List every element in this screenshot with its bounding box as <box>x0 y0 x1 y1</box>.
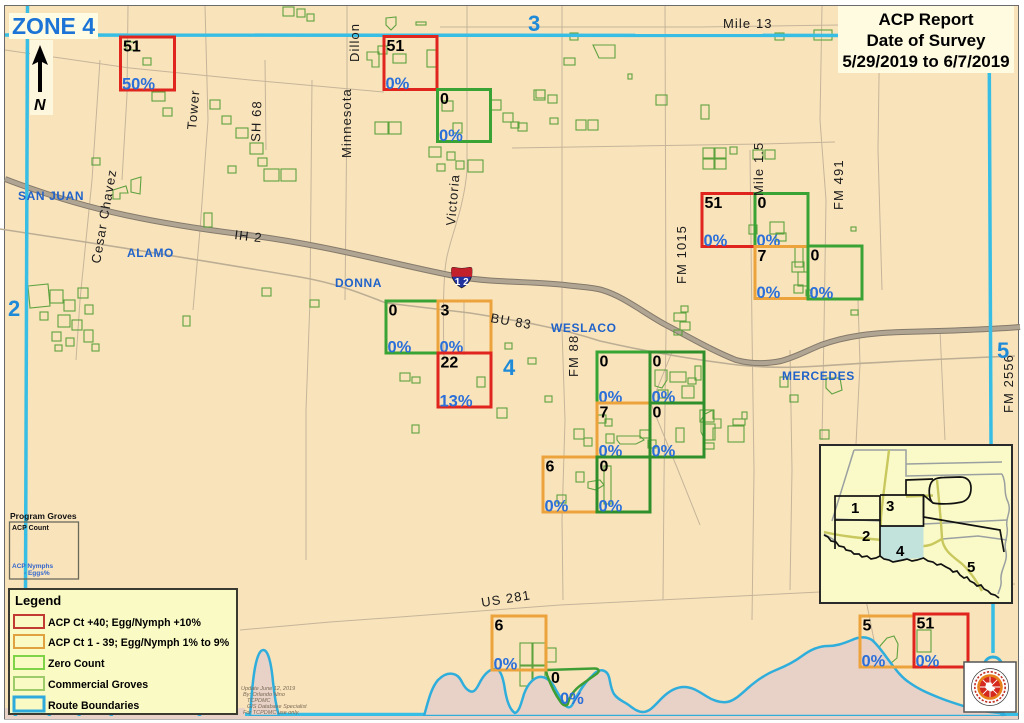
svg-text:N: N <box>34 97 46 114</box>
svg-text:0%: 0% <box>545 498 569 516</box>
svg-text:51: 51 <box>917 616 935 633</box>
svg-text:22: 22 <box>441 355 459 372</box>
svg-text:5/29/2019 to 6/7/2019: 5/29/2019 to 6/7/2019 <box>842 52 1009 71</box>
svg-text:5: 5 <box>863 618 872 635</box>
svg-text:0%: 0% <box>810 285 834 303</box>
svg-text:0%: 0% <box>439 127 463 145</box>
svg-text:2: 2 <box>8 296 20 321</box>
svg-text:13%: 13% <box>440 393 473 411</box>
svg-text:51: 51 <box>705 195 723 212</box>
svg-text:4: 4 <box>503 355 516 380</box>
svg-text:Dillon: Dillon <box>347 23 362 62</box>
svg-text:0%: 0% <box>494 656 518 674</box>
svg-text:ACP Nymphs: ACP Nymphs <box>12 563 53 570</box>
svg-text:4: 4 <box>896 543 905 560</box>
svg-text:51: 51 <box>123 39 141 56</box>
svg-text:0%: 0% <box>386 75 410 93</box>
svg-text:5: 5 <box>997 338 1009 363</box>
svg-text:ZONE 4: ZONE 4 <box>12 13 95 39</box>
svg-text:50%: 50% <box>122 76 155 94</box>
svg-text:2: 2 <box>862 528 870 545</box>
svg-text:SH 68: SH 68 <box>248 100 264 142</box>
svg-text:0: 0 <box>653 405 662 422</box>
svg-text:For TCPDMC use only.: For TCPDMC use only. <box>243 710 300 716</box>
svg-text:3: 3 <box>886 498 894 515</box>
svg-text:FM 491: FM 491 <box>831 159 846 210</box>
svg-text:Zero Count: Zero Count <box>48 658 105 670</box>
svg-text:0: 0 <box>600 354 609 371</box>
svg-text:3: 3 <box>528 11 540 36</box>
svg-text:3: 3 <box>441 303 450 320</box>
svg-text:0%: 0% <box>757 284 781 302</box>
svg-text:- Eggs%: - Eggs% <box>24 570 50 577</box>
svg-text:SAN JUAN: SAN JUAN <box>18 189 84 203</box>
svg-text:0%: 0% <box>704 232 728 250</box>
svg-text:0%: 0% <box>560 690 584 708</box>
svg-text:1 2: 1 2 <box>455 277 469 288</box>
svg-text:0: 0 <box>440 91 449 108</box>
svg-text:1: 1 <box>851 500 859 517</box>
svg-text:ACP Ct +40; Egg/Nymph +10%: ACP Ct +40; Egg/Nymph +10% <box>48 617 201 629</box>
svg-text:0: 0 <box>389 303 398 320</box>
svg-text:WESLACO: WESLACO <box>551 321 617 335</box>
svg-text:FM 88: FM 88 <box>566 335 581 377</box>
svg-text:6: 6 <box>495 618 504 635</box>
svg-text:0: 0 <box>600 459 609 476</box>
svg-text:7: 7 <box>600 405 609 422</box>
svg-text:0%: 0% <box>652 443 676 461</box>
svg-text:Program Groves: Program Groves <box>10 511 77 521</box>
svg-text:0%: 0% <box>388 339 412 357</box>
svg-text:0: 0 <box>758 195 767 212</box>
svg-text:5: 5 <box>967 559 975 576</box>
svg-text:Mile 1.5: Mile 1.5 <box>751 142 766 196</box>
svg-text:6: 6 <box>546 459 555 476</box>
svg-text:51: 51 <box>387 38 405 55</box>
svg-text:Commercial Groves: Commercial Groves <box>48 679 148 691</box>
svg-text:DONNA: DONNA <box>335 276 382 290</box>
svg-text:0%: 0% <box>599 498 623 516</box>
svg-text:Minnesota: Minnesota <box>339 88 354 158</box>
svg-text:0: 0 <box>551 670 560 687</box>
svg-text:Mile 13: Mile 13 <box>723 16 773 31</box>
svg-text:0%: 0% <box>862 653 886 671</box>
svg-text:MERCEDES: MERCEDES <box>782 369 855 383</box>
svg-text:Route Boundaries: Route Boundaries <box>48 700 139 712</box>
svg-text:ACP Report: ACP Report <box>878 10 973 29</box>
svg-text:Date of Survey: Date of Survey <box>866 31 986 50</box>
svg-text:ACP Count: ACP Count <box>12 525 49 532</box>
svg-text:FM 1015: FM 1015 <box>674 225 689 284</box>
svg-text:7: 7 <box>758 248 767 265</box>
svg-text:0: 0 <box>653 354 662 371</box>
svg-text:0: 0 <box>811 248 820 265</box>
svg-text:0%: 0% <box>916 653 940 671</box>
svg-text:ACP Ct 1 - 39; Egg/Nymph 1% to: ACP Ct 1 - 39; Egg/Nymph 1% to 9% <box>48 637 230 649</box>
svg-text:Legend: Legend <box>15 593 61 608</box>
svg-text:ALAMO: ALAMO <box>127 246 174 260</box>
